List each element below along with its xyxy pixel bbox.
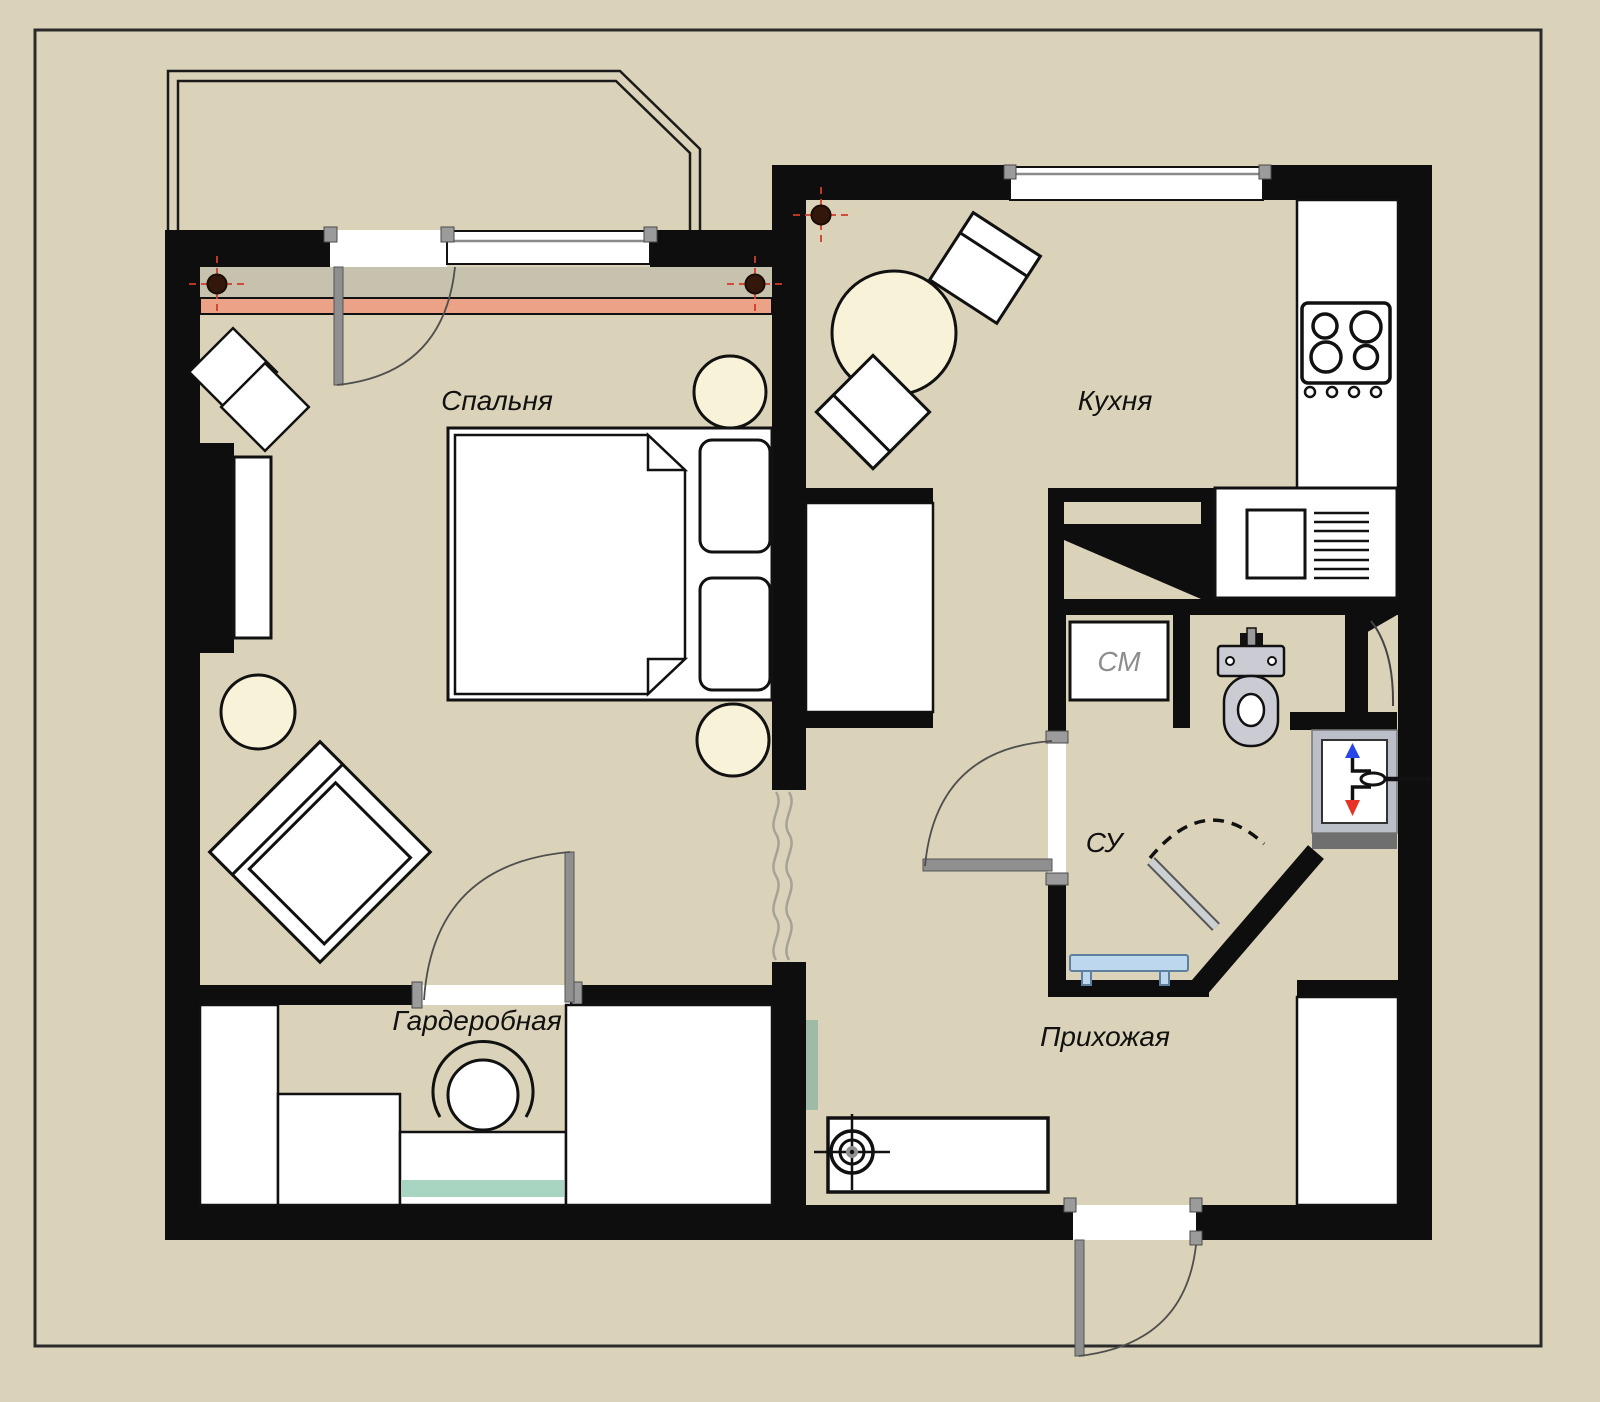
- wardrobe-cabinet-right: [566, 1005, 772, 1205]
- wardrobe-wall-right: [570, 985, 772, 1005]
- toilet-zone-wall: [1290, 712, 1397, 730]
- bedroom-window: [447, 231, 650, 264]
- bottom-wall-left: [165, 1205, 1073, 1240]
- bench-top: [1070, 955, 1188, 971]
- closet-bottom-band: [806, 712, 933, 728]
- kitchen-window: [1010, 167, 1263, 200]
- tv-niche: [198, 443, 234, 653]
- entrance-door-leaf: [1075, 1240, 1084, 1356]
- window-sill-band: [200, 267, 772, 298]
- jamb: [1046, 873, 1068, 885]
- bedroom-label: Спальня: [441, 385, 553, 416]
- double-bed: [448, 428, 772, 700]
- jamb: [1190, 1198, 1202, 1212]
- jamb: [1190, 1231, 1202, 1245]
- bathroom-left-wall-lower: [1048, 873, 1066, 997]
- balcony-door-opening: [330, 230, 447, 267]
- bathroom-door-opening: [1048, 743, 1066, 873]
- wardrobe-mirror-strip: [402, 1180, 564, 1197]
- cooktop-knob: [1349, 387, 1359, 397]
- washer-stub-wall: [1173, 615, 1190, 728]
- jamb: [441, 227, 454, 242]
- hall-closet-right: [1297, 997, 1398, 1205]
- bench-leg: [1160, 971, 1169, 985]
- cooktop: [1302, 303, 1390, 397]
- wardrobe-stool: [448, 1060, 518, 1130]
- kitchen-top-wall-left: [772, 165, 1010, 200]
- jamb: [1004, 165, 1016, 179]
- wardrobe-cabinet-left: [200, 1005, 278, 1205]
- kitchen-label: Кухня: [1078, 385, 1153, 416]
- toilet-bolt: [1268, 657, 1276, 665]
- wardrobe-label: Гардеробная: [392, 1005, 561, 1036]
- jamb: [1259, 165, 1271, 179]
- floor-plan: Спальня Кухня Гардеробная Прихожая СУ СМ: [0, 0, 1600, 1402]
- jamb: [324, 227, 337, 242]
- toilet-bolt: [1226, 657, 1234, 665]
- riser-base-strip: [1312, 833, 1397, 849]
- wardrobe-wall-left: [165, 985, 422, 1005]
- radiator-band: [200, 298, 772, 314]
- hallway-label: Прихожая: [1040, 1021, 1170, 1052]
- wardrobe-door-opening: [422, 985, 570, 1005]
- burner: [1351, 312, 1381, 342]
- left-exterior-wall: [165, 230, 200, 1240]
- sink-bowl: [1247, 510, 1305, 578]
- pouf: [221, 675, 295, 749]
- pillow: [700, 578, 770, 690]
- bed-blanket: [455, 435, 685, 694]
- cooktop-knob: [1305, 387, 1315, 397]
- kitchen-top-wall-right: [1263, 165, 1432, 200]
- burner: [1355, 346, 1378, 369]
- jamb: [644, 227, 657, 242]
- toilet-bowl-hole: [1238, 694, 1264, 726]
- vent-shaft-band: [1064, 524, 1201, 540]
- bathroom-label: СУ: [1086, 827, 1126, 858]
- bench-leg: [1082, 971, 1091, 985]
- right-exterior-wall: [1398, 165, 1432, 1240]
- bedside-table: [694, 356, 766, 428]
- wardrobe-door-leaf: [565, 852, 574, 1002]
- kitchen-sink-unit: [1215, 488, 1397, 598]
- jamb: [1064, 1198, 1076, 1212]
- valve-handle: [1361, 773, 1385, 785]
- pillow: [700, 440, 770, 552]
- bathroom-left-wall-upper: [1048, 615, 1066, 743]
- closet-top-band: [806, 488, 933, 503]
- balcony-door-leaf: [334, 267, 343, 385]
- cooktop-knob: [1327, 387, 1337, 397]
- hall-closet-center: [806, 503, 933, 712]
- center-wall-lower: [772, 962, 806, 1240]
- washing-machine-label: СМ: [1097, 646, 1141, 677]
- tv-console: [234, 457, 271, 638]
- bathroom-bottom-wall: [1048, 980, 1209, 997]
- bedroom-top-wall-right: [650, 230, 772, 267]
- hall-mirror-strip: [806, 1020, 818, 1110]
- burner: [1313, 314, 1337, 338]
- hall-closet-top-wall: [1297, 980, 1398, 997]
- toilet: [1218, 628, 1284, 746]
- center-wall-upper: [772, 165, 806, 790]
- shoe-console: [828, 1118, 1048, 1192]
- burner: [1311, 342, 1341, 372]
- wardrobe-cabinet-bottom-left: [278, 1094, 400, 1205]
- cooktop-knob: [1371, 387, 1381, 397]
- bedside-table: [697, 704, 769, 776]
- bathroom-door-leaf: [923, 859, 1052, 871]
- bottom-wall-right: [1196, 1205, 1432, 1240]
- kitchen-bath-wall: [1215, 598, 1398, 615]
- entrance-door-opening: [1073, 1205, 1196, 1240]
